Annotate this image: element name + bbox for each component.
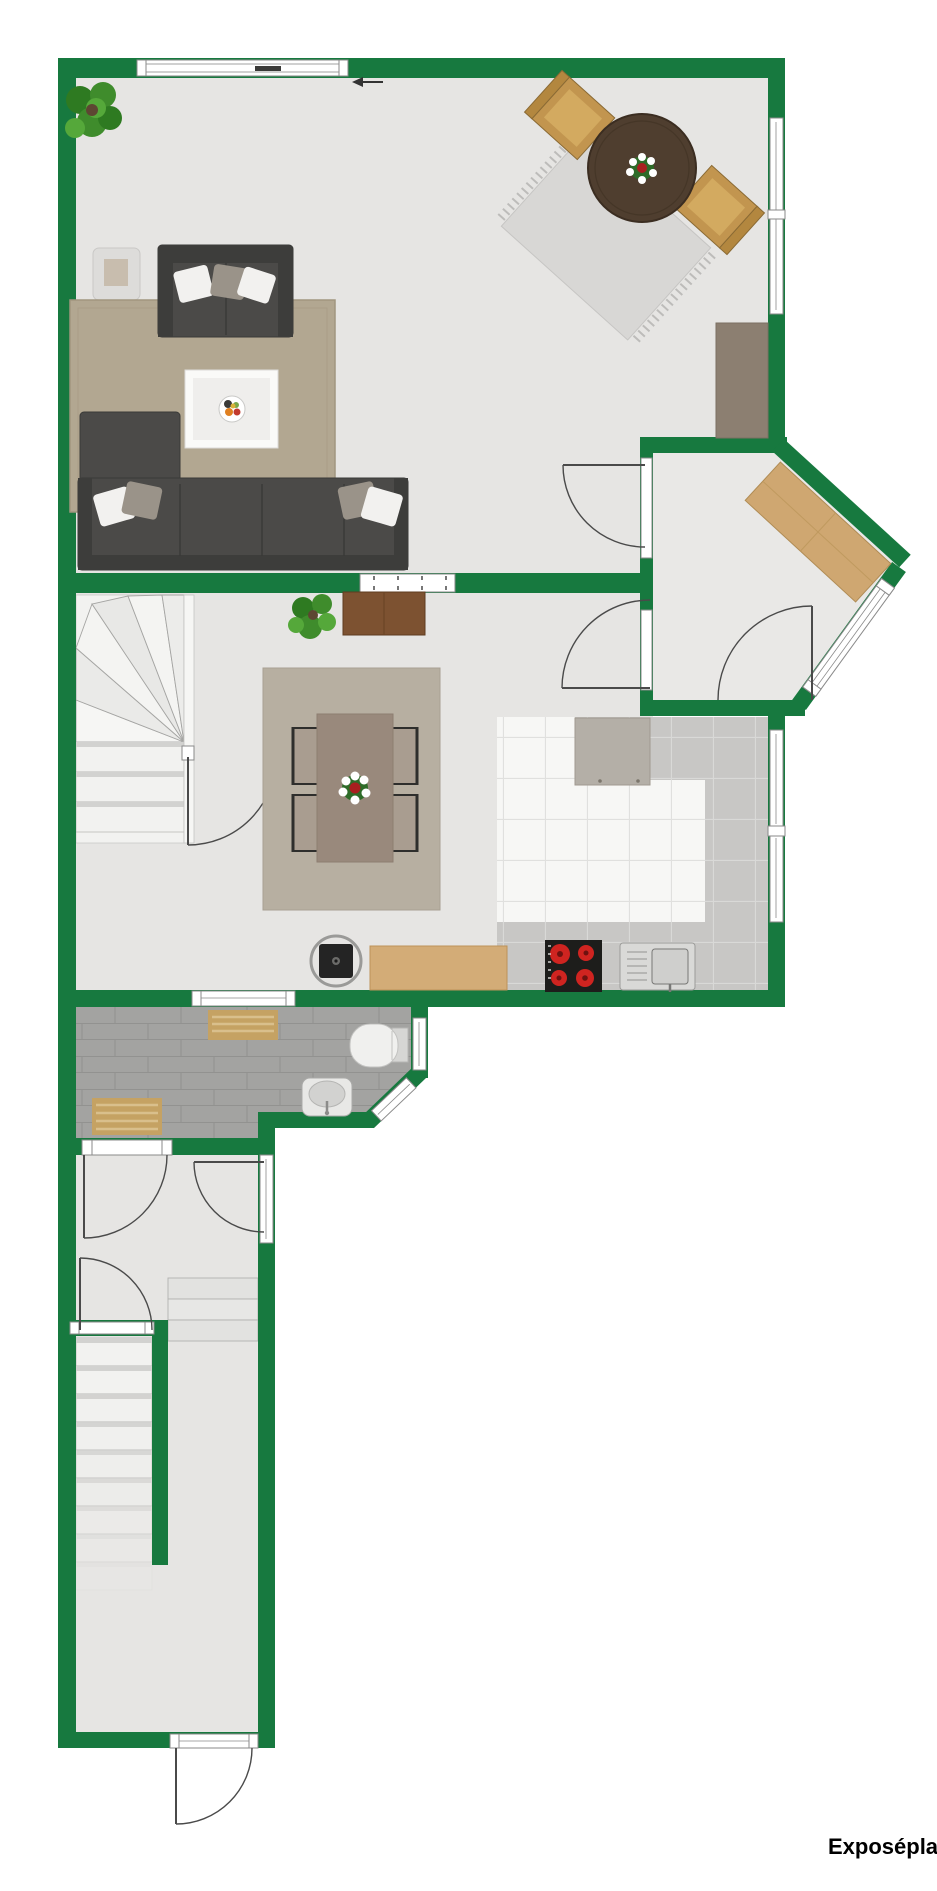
window-bathroom-right	[413, 1018, 426, 1070]
round-table	[588, 114, 696, 222]
dining-chair	[292, 727, 318, 785]
hatch-living-dining	[360, 574, 455, 592]
sideboard-taupe	[716, 323, 768, 438]
fruit-bowl	[219, 396, 245, 422]
caption: Exposéplan	[828, 1834, 937, 1860]
dining-chair	[392, 727, 418, 785]
wall-living-dining	[58, 573, 653, 593]
kitchen-bench	[370, 946, 507, 990]
dining-table	[317, 714, 393, 862]
wall-entry-top	[640, 437, 787, 453]
coffee-table	[185, 370, 278, 448]
pedestal-stove	[311, 936, 361, 986]
wall-kitchen-bath	[58, 990, 785, 1007]
window-dining-bathroom	[192, 991, 295, 1006]
staircase-upper	[76, 595, 194, 843]
dining-chair	[292, 794, 318, 852]
toilet	[350, 1024, 408, 1067]
floor-plan-drawing	[0, 0, 937, 1891]
window-kitchen-right	[768, 730, 785, 922]
kitchen-sink	[620, 943, 695, 992]
refrigerator	[575, 718, 650, 785]
dining-chair	[392, 794, 418, 852]
loveseat-sofa	[158, 245, 293, 337]
floor-plan: Exposéplan	[0, 0, 937, 1891]
bath-mat	[92, 1098, 162, 1135]
window-living-right	[768, 118, 785, 314]
staircase-basement	[76, 1338, 152, 1590]
cooktop	[545, 940, 602, 992]
bath-mat	[208, 1010, 278, 1040]
side-table	[93, 248, 140, 300]
sliding-terrace-door	[137, 60, 348, 76]
door-front	[170, 1734, 258, 1824]
washbasin	[302, 1078, 352, 1116]
wall-stair-stub	[152, 1320, 168, 1565]
hallway-steps	[168, 1278, 258, 1341]
